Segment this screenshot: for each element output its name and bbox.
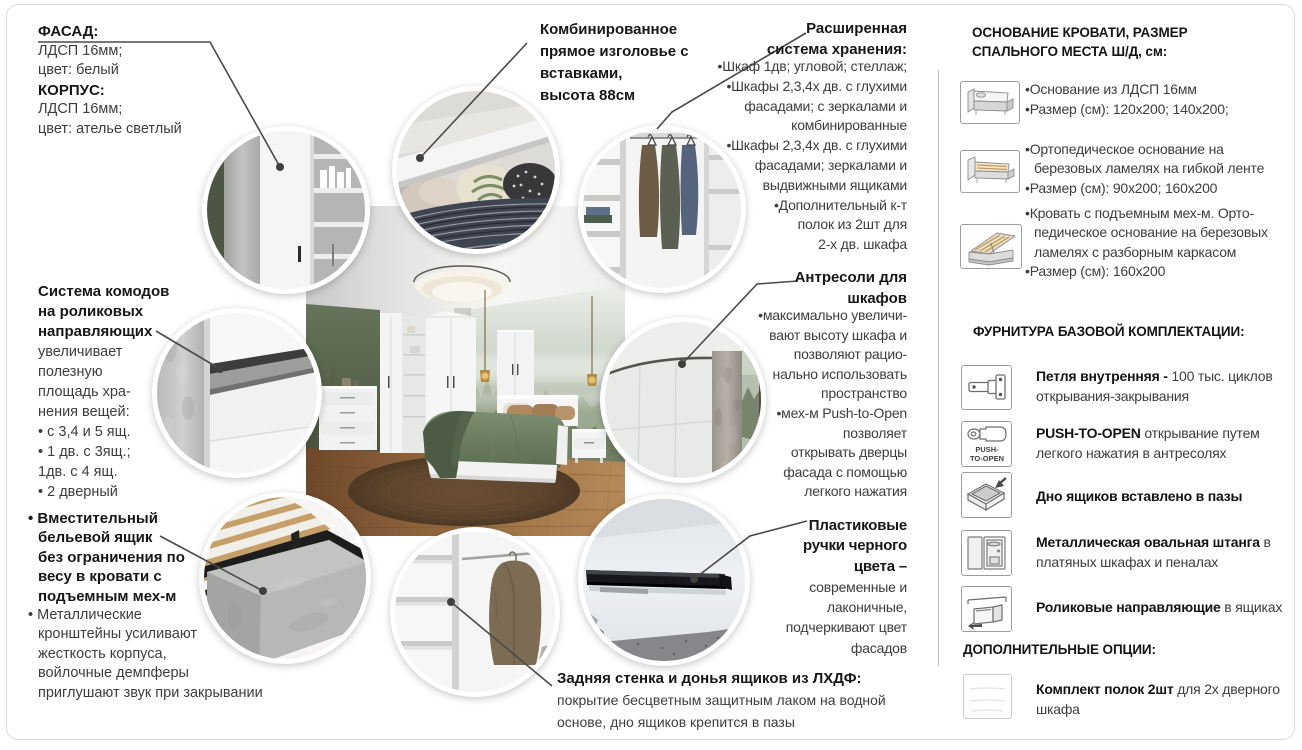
svg-text:PUSH-: PUSH- <box>975 445 999 454</box>
svg-text:TO-OPEN: TO-OPEN <box>970 454 1004 463</box>
